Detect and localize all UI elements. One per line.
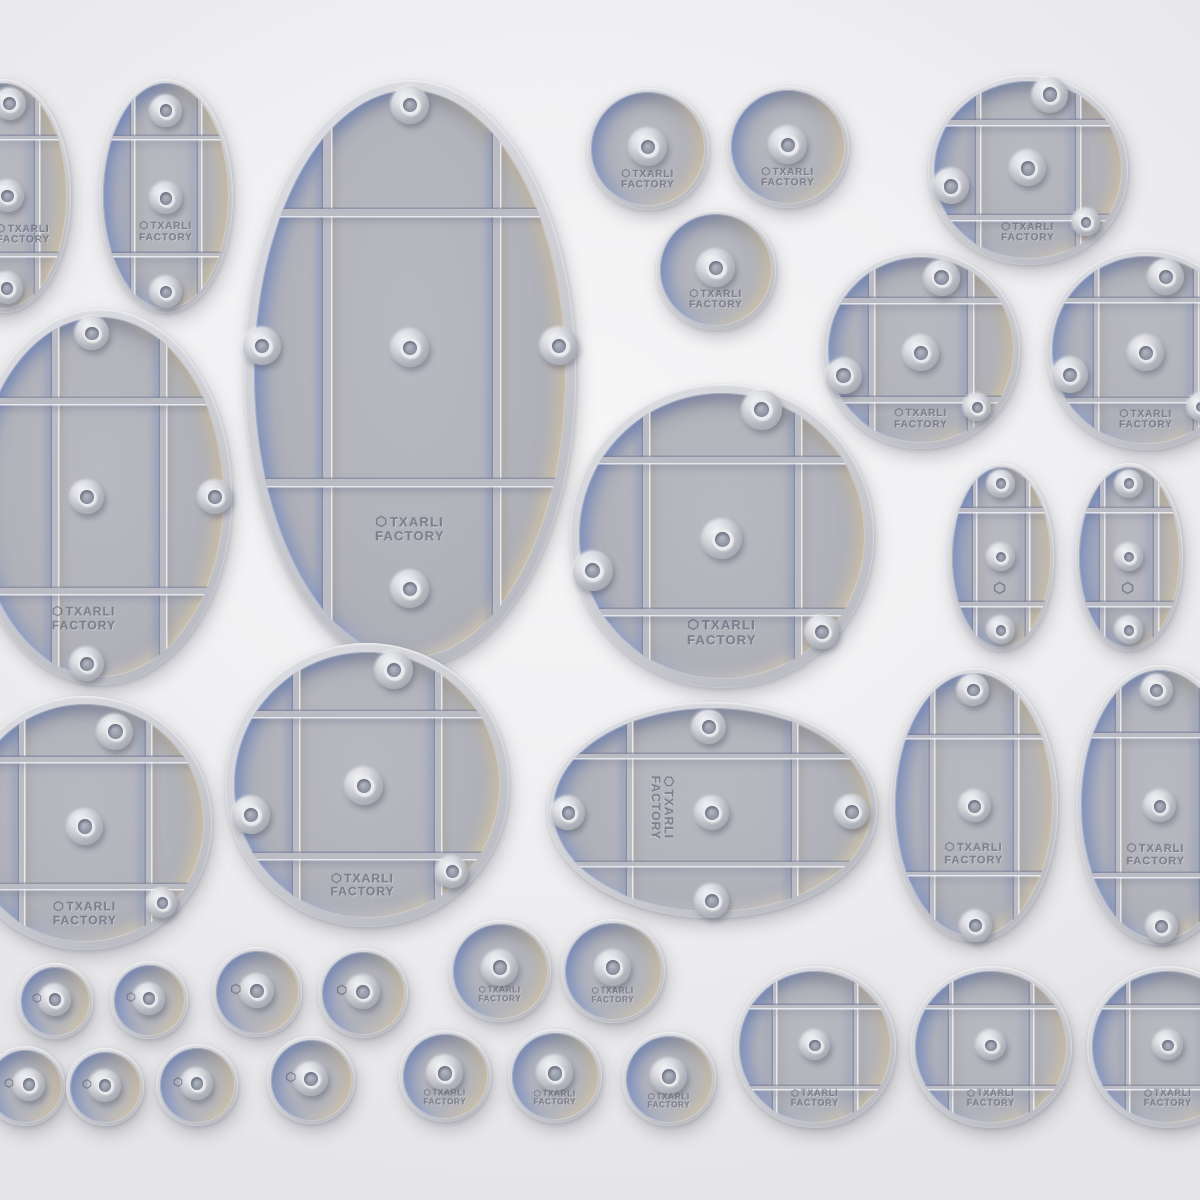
magnet-hole xyxy=(912,344,931,363)
round-base-tiny-3 xyxy=(212,947,302,1037)
round-base-tiny-8 xyxy=(267,1036,355,1124)
rib-horizontal xyxy=(1092,1005,1200,1009)
rib-vertical xyxy=(973,467,977,648)
magnet-hole xyxy=(141,990,158,1007)
brand-line2: FACTORY xyxy=(53,914,117,927)
hexagon-icon xyxy=(761,166,772,177)
rib-vertical xyxy=(19,704,25,943)
magnet-boss xyxy=(1010,150,1046,186)
brand-line2: FACTORY xyxy=(687,633,757,648)
magnet-boss xyxy=(1115,543,1143,571)
brand-engraving: TXARLIFACTORY xyxy=(648,1092,691,1111)
brand-line1: TXARLI xyxy=(906,408,948,419)
brand-engraving: TXARLIFACTORY xyxy=(534,1089,577,1108)
brand-line2: FACTORY xyxy=(139,232,193,243)
magnet-hole xyxy=(241,805,261,825)
brand-engraving: TXARLIFACTORY xyxy=(967,1088,1015,1108)
magnet-boss xyxy=(742,390,782,430)
magnet-boss xyxy=(1141,674,1173,706)
magnet-hole xyxy=(158,284,175,301)
magnet-boss xyxy=(987,543,1015,571)
brand-line2: FACTORY xyxy=(331,886,395,899)
brand-engraving xyxy=(336,985,349,996)
rib-horizontal xyxy=(1081,733,1200,737)
hexagon-icon xyxy=(1144,1088,1154,1098)
hexagon-icon xyxy=(967,1088,977,1098)
rib-horizontal xyxy=(952,602,1051,606)
magnet-hole xyxy=(248,982,266,1000)
brand-line2: FACTORY xyxy=(648,1102,691,1111)
magnet-hole xyxy=(994,550,1009,565)
brand-engraving xyxy=(82,1079,94,1089)
rib-horizontal xyxy=(915,1005,1067,1009)
magnet-boss xyxy=(482,950,518,986)
magnet-boss xyxy=(959,790,991,822)
product-photo: { "brand": { "line1": "TXARLI", "line2":… xyxy=(0,0,1200,1200)
round-base-grid-bottom-2: TXARLIFACTORY xyxy=(910,966,1072,1128)
magnet-boss xyxy=(957,674,989,706)
round-base-large-grid-bottom: TXARLIFACTORY xyxy=(225,643,509,927)
magnet-hole xyxy=(703,804,721,822)
rib-vertical xyxy=(1154,467,1158,648)
hexagon-icon xyxy=(945,842,958,854)
rib-vertical xyxy=(792,708,797,911)
brand-line1: TXARLI xyxy=(801,1088,838,1098)
brand-engraving: TXARLIFACTORY xyxy=(791,1088,839,1108)
hexagon-icon xyxy=(687,618,702,633)
rib-horizontal xyxy=(553,862,870,867)
magnet-boss xyxy=(70,647,104,681)
magnet-hole xyxy=(1194,400,1200,415)
magnet-boss xyxy=(391,329,429,367)
rib-horizontal xyxy=(0,757,204,763)
magnet-boss xyxy=(1072,208,1100,236)
brand-line2: FACTORY xyxy=(424,1098,467,1107)
brand-engraving: TXARLIFACTORY xyxy=(621,168,675,191)
brand-line2: FACTORY xyxy=(479,996,522,1005)
rib-horizontal xyxy=(234,711,501,717)
magnet-boss xyxy=(651,1058,687,1094)
magnet-boss xyxy=(13,1069,45,1101)
hexagon-icon xyxy=(82,1081,94,1092)
rib-vertical xyxy=(643,393,650,679)
magnet-hole xyxy=(546,1064,565,1083)
magnet-boss xyxy=(232,796,270,834)
magnet-hole xyxy=(78,488,96,506)
magnet-hole xyxy=(400,338,420,358)
hexagon-icon xyxy=(52,605,66,619)
pill-base-tiny-2 xyxy=(1075,463,1183,651)
brand-line2: FACTORY xyxy=(1126,855,1185,867)
rib-vertical xyxy=(131,83,135,309)
magnet-hole xyxy=(1019,159,1038,178)
magnet-hole xyxy=(1137,344,1156,363)
base-floor xyxy=(1081,670,1200,940)
brand-line1: TXARLI xyxy=(1013,222,1055,233)
brand-line2: FACTORY xyxy=(791,1098,839,1108)
magnet-boss xyxy=(294,1062,328,1096)
hexagon-icon xyxy=(424,1088,433,1097)
round-base-tiny-text-4: TXARLIFACTORY xyxy=(508,1029,602,1123)
magnet-boss xyxy=(695,884,729,918)
magnet-hole xyxy=(778,135,798,155)
magnet-boss xyxy=(97,714,133,750)
hexagon-icon xyxy=(285,1074,298,1086)
brand-engraving: TXARLIFACTORY xyxy=(53,901,117,928)
brand-line1: TXARLI xyxy=(701,289,743,300)
rib-vertical xyxy=(293,652,299,919)
magnet-hole xyxy=(604,958,623,977)
magnet-hole xyxy=(400,95,420,115)
hexagon-icon xyxy=(479,986,488,995)
brand-line1: TXARLI xyxy=(657,1092,690,1101)
magnet-hole xyxy=(994,476,1009,491)
brand-engraving: TXARLIFACTORY xyxy=(689,289,743,312)
magnet-boss xyxy=(1115,470,1143,498)
magnet-boss xyxy=(1148,259,1184,295)
round-base-large-grid-center: TXARLIFACTORY xyxy=(570,384,874,688)
rib-horizontal xyxy=(1079,508,1180,512)
magnet-boss xyxy=(826,358,862,394)
magnet-boss xyxy=(240,974,274,1008)
magnet-boss xyxy=(70,480,104,514)
magnet-hole xyxy=(47,991,64,1008)
magnet-hole xyxy=(1122,550,1137,565)
brand-line2: FACTORY xyxy=(1144,1098,1192,1108)
magnet-hole xyxy=(1160,1038,1176,1054)
hexagon-icon xyxy=(336,987,349,999)
magnet-hole xyxy=(967,917,984,934)
rib-horizontal xyxy=(0,884,204,890)
magnet-boss xyxy=(147,888,177,918)
magnet-boss xyxy=(629,128,667,166)
magnet-hole xyxy=(703,892,721,910)
brand-engraving: TXARLIFACTORY xyxy=(139,221,193,244)
hexagon-icon xyxy=(331,871,345,885)
brand-line2: FACTORY xyxy=(621,180,675,191)
magnet-boss xyxy=(805,615,839,649)
round-base-tiny-text-3: TXARLIFACTORY xyxy=(399,1030,491,1122)
round-base-grid-top-right: TXARLIFACTORY xyxy=(928,75,1128,265)
hexagon-icon xyxy=(534,1089,543,1098)
rib-vertical xyxy=(1030,971,1034,1123)
magnet-boss xyxy=(1032,77,1068,113)
brand-engraving: TXARLIFACTORY xyxy=(331,872,395,899)
brand-line1: TXARLI xyxy=(543,1089,576,1098)
brand-line2: FACTORY xyxy=(967,1098,1015,1108)
magnet-hole xyxy=(189,1075,206,1092)
magnet-boss xyxy=(1128,335,1164,371)
magnet-boss xyxy=(375,651,413,689)
magnet-hole xyxy=(932,268,951,287)
rib-horizontal xyxy=(1081,873,1200,877)
magnet-boss xyxy=(427,1055,463,1091)
brand-line1: TXARLI xyxy=(702,618,756,633)
magnet-hole xyxy=(0,280,15,297)
rib-vertical xyxy=(795,393,802,679)
brand-engraving: TXARLIFACTORY xyxy=(52,606,116,633)
magnet-boss xyxy=(537,1055,573,1091)
hexagon-icon xyxy=(894,408,905,419)
rib-horizontal xyxy=(553,754,870,759)
magnet-boss xyxy=(692,710,726,744)
rib-horizontal xyxy=(0,588,224,594)
rib-vertical xyxy=(773,971,777,1123)
magnet-boss xyxy=(540,327,578,365)
magnet-hole xyxy=(436,1064,455,1083)
magnet-hole xyxy=(78,655,96,673)
round-base-tiny-text-5: TXARLIFACTORY xyxy=(622,1032,716,1126)
brand-engraving xyxy=(173,1077,185,1087)
hexagon-icon xyxy=(661,776,675,790)
magnet-hole xyxy=(384,660,404,680)
brand-line1: TXARLI xyxy=(1139,843,1185,855)
brand-line1: TXARLI xyxy=(601,986,634,995)
rib-horizontal xyxy=(103,136,229,140)
rib-horizontal xyxy=(0,136,67,140)
rib-horizontal xyxy=(952,508,1051,512)
magnet-hole xyxy=(966,798,983,815)
brand-engraving xyxy=(4,1078,16,1088)
brand-line1: TXARLI xyxy=(8,224,50,235)
magnet-boss xyxy=(924,260,960,296)
hexagon-icon xyxy=(1126,843,1139,855)
magnet-hole xyxy=(1,95,18,112)
rib-vertical xyxy=(1116,670,1120,940)
brand-line1: TXARLI xyxy=(1131,409,1173,420)
magnet-boss xyxy=(903,335,939,371)
magnet-hole xyxy=(638,137,658,157)
magnet-hole xyxy=(302,1070,320,1088)
rib-horizontal xyxy=(0,253,67,257)
brand-engraving xyxy=(285,1072,298,1083)
rib-horizontal xyxy=(254,479,566,486)
magnet-boss xyxy=(346,975,380,1009)
magnet-hole xyxy=(354,776,374,796)
round-base-grid-bottom-1: TXARLIFACTORY xyxy=(734,966,896,1128)
magnet-hole xyxy=(158,190,175,207)
render-canvas: TXARLIFACTORYTXARLIFACTORYTXARLIFACTORYT… xyxy=(0,0,1200,1200)
magnet-boss xyxy=(198,480,232,514)
magnet-boss xyxy=(960,910,992,942)
round-base-small-text-2: TXARLIFACTORY xyxy=(727,86,849,208)
hexagon-icon xyxy=(592,986,601,995)
brand-line1: TXARLI xyxy=(977,1088,1014,1098)
brand-engraving xyxy=(126,992,138,1002)
magnet-hole xyxy=(834,366,853,385)
magnet-boss xyxy=(150,276,182,308)
brand-line1: TXARLI xyxy=(1154,1088,1191,1098)
hexagon-icon xyxy=(230,986,243,998)
magnet-hole xyxy=(712,529,733,550)
hexagon-icon xyxy=(791,1088,801,1098)
brand-line2: FACTORY xyxy=(945,854,1004,866)
round-base-grid-mid-right-2-partial: TXARLIFACTORY xyxy=(1046,250,1200,450)
brand-engraving: TXARLIFACTORY xyxy=(592,987,635,1006)
magnet-hole xyxy=(0,188,16,205)
magnet-hole xyxy=(560,804,578,822)
rib-vertical xyxy=(976,81,980,260)
magnet-hole xyxy=(354,983,372,1001)
rib-vertical xyxy=(1100,467,1104,648)
rib-horizontal xyxy=(828,298,1014,302)
magnet-hole xyxy=(983,1038,999,1054)
hexagon-icon xyxy=(4,1080,16,1091)
rib-vertical xyxy=(198,83,202,309)
brand-engraving: TXARLIFACTORY xyxy=(375,515,445,544)
brand-engraving: TXARLIFACTORY xyxy=(1119,409,1173,432)
hexagon-icon xyxy=(53,900,67,914)
rib-horizontal xyxy=(934,120,1123,124)
brand-engraving: TXARLIFACTORY xyxy=(0,223,50,246)
brand-engraving xyxy=(230,984,243,995)
magnet-hole xyxy=(582,560,603,581)
brand-line2: FACTORY xyxy=(1001,233,1055,244)
magnet-boss xyxy=(595,950,631,986)
round-base-grid-mid-right-1: TXARLIFACTORY xyxy=(822,251,1020,449)
brand-line1: TXARLI xyxy=(344,871,394,885)
hexagon-icon xyxy=(621,168,632,179)
magnet-boss xyxy=(391,86,429,124)
round-base-tiny-text-2: TXARLIFACTORY xyxy=(561,919,665,1023)
magnet-hole xyxy=(813,623,831,641)
magnet-hole xyxy=(942,177,961,196)
magnet-boss xyxy=(181,1068,213,1100)
brand-engraving: TXARLIFACTORY xyxy=(647,776,674,840)
rib-vertical xyxy=(627,708,632,911)
round-base-tiny-5-partial xyxy=(0,1046,65,1126)
magnet-hole xyxy=(97,1077,114,1094)
magnet-boss xyxy=(963,393,991,421)
rib-vertical xyxy=(1094,256,1098,444)
hexagon-icon xyxy=(139,221,150,232)
magnet-boss xyxy=(1052,357,1088,393)
magnet-boss xyxy=(987,470,1015,498)
oval-base-landscape: TXARLIFACTORY xyxy=(547,702,877,918)
hexagon-icon xyxy=(648,1092,657,1101)
round-base-tiny-text-1: TXARLIFACTORY xyxy=(449,920,551,1022)
round-base-tiny-4 xyxy=(318,948,408,1038)
magnet-boss xyxy=(933,168,969,204)
magnet-hole xyxy=(700,718,718,736)
magnet-hole xyxy=(76,817,95,836)
oval-base-large: TXARLIFACTORY xyxy=(244,80,576,668)
round-base-small-text-1: TXARLIFACTORY xyxy=(587,88,709,210)
brand-line1: TXARLI xyxy=(957,842,1003,854)
rib-vertical xyxy=(869,257,873,443)
magnet-boss xyxy=(769,126,807,164)
round-base-grid-partial-bottom-left: TXARLIFACTORY xyxy=(0,696,212,950)
round-base-small-text-3: TXARLIFACTORY xyxy=(656,210,776,330)
magnet-hole xyxy=(400,579,420,599)
brand-line1: TXARLI xyxy=(151,221,193,232)
rib-vertical xyxy=(930,673,934,937)
hexagon-icon xyxy=(1121,583,1137,598)
hexagon-icon xyxy=(993,583,1009,598)
magnet-hole xyxy=(1079,215,1094,230)
round-base-grid-bottom-3-partial: TXARLIFACTORY xyxy=(1087,966,1200,1128)
brand-line1: TXARLI xyxy=(773,166,815,177)
magnet-hole xyxy=(491,958,510,977)
magnet-hole xyxy=(706,258,726,278)
hexagon-icon xyxy=(1001,222,1012,233)
magnet-hole xyxy=(965,682,982,699)
brand-line2: FACTORY xyxy=(894,419,948,430)
brand-line2: FACTORY xyxy=(52,619,116,632)
magnet-hole xyxy=(83,325,101,343)
rib-horizontal xyxy=(739,1005,891,1009)
magnet-hole xyxy=(549,336,569,356)
magnet-hole xyxy=(994,623,1009,638)
magnet-boss xyxy=(697,249,735,287)
magnet-boss xyxy=(436,856,468,888)
magnet-boss xyxy=(1146,911,1178,943)
magnet-hole xyxy=(1122,476,1137,491)
brand-engraving: TXARLIFACTORY xyxy=(424,1089,467,1108)
rib-horizontal xyxy=(895,872,1053,876)
rib-vertical xyxy=(854,971,858,1123)
brand-engraving xyxy=(993,582,1009,595)
magnet-hole xyxy=(206,488,224,506)
magnet-hole xyxy=(660,1067,679,1086)
magnet-hole xyxy=(21,1076,38,1093)
brand-engraving: TXARLIFACTORY xyxy=(1144,1088,1192,1108)
magnet-boss xyxy=(695,796,729,830)
rib-vertical xyxy=(949,971,953,1123)
brand-line1: TXARLI xyxy=(66,605,116,619)
oval-base-medium-partial-left: TXARLIFACTORY xyxy=(0,309,232,685)
magnet-hole xyxy=(155,895,171,911)
magnet-boss xyxy=(573,551,613,591)
hexagon-icon xyxy=(32,995,44,1006)
magnet-hole xyxy=(1148,682,1165,699)
brand-line1: TXARLI xyxy=(390,514,444,529)
brand-line2: FACTORY xyxy=(375,530,445,545)
magnet-hole xyxy=(807,1038,823,1054)
magnet-hole xyxy=(1152,798,1169,815)
brand-line2: FACTORY xyxy=(761,178,815,189)
rib-horizontal xyxy=(254,209,566,216)
rib-vertical xyxy=(1126,971,1130,1123)
brand-engraving xyxy=(32,993,44,1003)
magnet-boss xyxy=(702,519,742,559)
oval-base-small-partial-top-left: TXARLIFACTORY xyxy=(0,79,71,313)
magnet-hole xyxy=(444,863,461,880)
magnet-hole xyxy=(1122,623,1137,638)
brand-line1: TXARLI xyxy=(661,789,675,839)
magnet-hole xyxy=(1153,918,1170,935)
brand-line1: TXARLI xyxy=(433,1088,466,1097)
magnet-hole xyxy=(843,803,861,821)
rib-vertical xyxy=(35,83,39,309)
hexagon-icon xyxy=(126,994,138,1005)
magnet-boss xyxy=(391,570,429,608)
round-base-tiny-2 xyxy=(110,961,188,1039)
rib-vertical xyxy=(323,90,330,658)
round-base-tiny-6 xyxy=(66,1048,144,1126)
magnet-hole xyxy=(1157,268,1176,287)
rib-horizontal xyxy=(0,398,224,404)
brand-line2: FACTORY xyxy=(592,996,635,1005)
pill-base-medium-1: TXARLIFACTORY xyxy=(890,668,1058,942)
magnet-hole xyxy=(751,399,772,420)
brand-line2: FACTORY xyxy=(1119,420,1173,431)
rib-vertical xyxy=(160,317,166,677)
rib-vertical xyxy=(493,90,500,658)
rib-horizontal xyxy=(1079,602,1180,606)
rib-horizontal xyxy=(103,253,229,257)
brand-line1: TXARLI xyxy=(488,986,521,995)
